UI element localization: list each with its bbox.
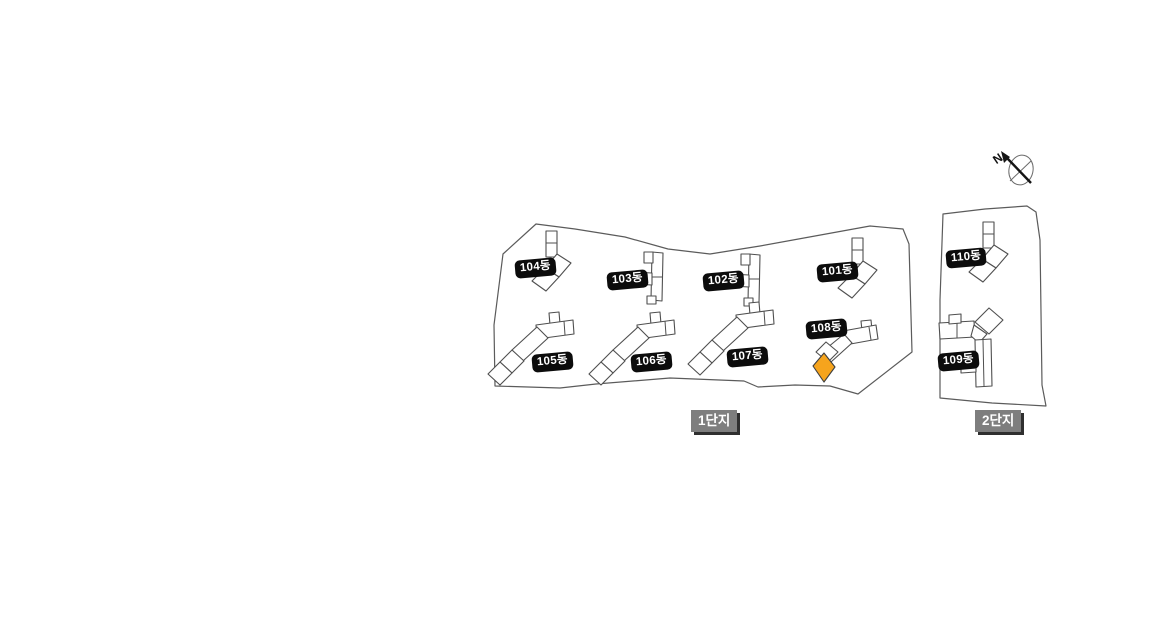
building-label-107[interactable]: 107동 — [726, 346, 768, 367]
building-label-102[interactable]: 102동 — [702, 270, 744, 291]
site-map: N 101동 102동 103동 104동 105동 106동 107동 108… — [0, 0, 1160, 630]
complex-1-label: 1단지 — [691, 410, 737, 432]
building-label-109[interactable]: 109동 — [937, 350, 979, 371]
building-109-shape[interactable] — [939, 308, 1003, 387]
site-plan-drawing: N — [0, 0, 1160, 630]
building-106-shape[interactable] — [589, 312, 675, 385]
building-label-106[interactable]: 106동 — [630, 351, 672, 372]
building-label-105[interactable]: 105동 — [531, 351, 573, 372]
building-105-shape[interactable] — [488, 312, 574, 385]
building-label-101[interactable]: 101동 — [816, 261, 858, 282]
building-label-108[interactable]: 108동 — [805, 318, 847, 339]
compass: N — [990, 150, 1036, 187]
building-label-104[interactable]: 104동 — [514, 257, 556, 278]
building-label-103[interactable]: 103동 — [606, 269, 648, 290]
complex-2-label: 2단지 — [975, 410, 1021, 432]
building-label-110[interactable]: 110동 — [945, 247, 987, 268]
